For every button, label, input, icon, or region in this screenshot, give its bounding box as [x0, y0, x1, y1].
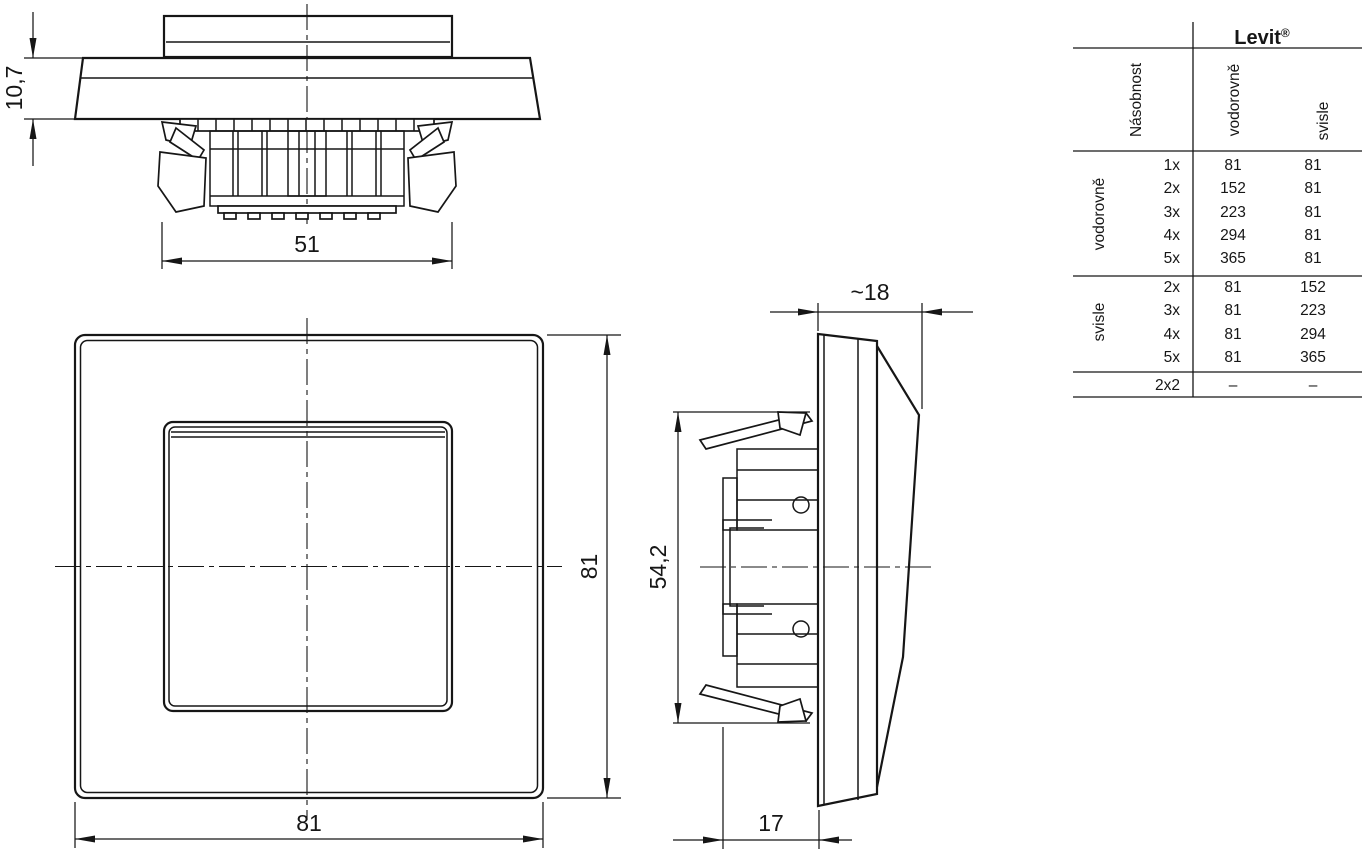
table-header-multiplicity: Násobnost	[1128, 62, 1145, 137]
dim-label-side-depth-front: ~18	[850, 279, 889, 305]
dim-label-front-height: 81	[576, 554, 602, 580]
table-cell: 294	[1300, 326, 1326, 343]
table-cell: 2x2	[1155, 377, 1180, 394]
top-view: 10,7 51	[1, 4, 540, 269]
rocker-profile	[164, 16, 452, 57]
table-cell: 81	[1304, 227, 1321, 244]
table-brand: Levit®	[1234, 26, 1290, 49]
dim-label-side-height: 54,2	[645, 545, 671, 590]
table-cell: 4x	[1164, 326, 1181, 343]
side-view: ~18 54,2 17	[645, 279, 973, 849]
table-cell: 81	[1224, 157, 1241, 174]
table-cell: 2x	[1164, 180, 1181, 197]
table-cell: 152	[1300, 279, 1326, 296]
table-group-label-vertical: svisle	[1091, 303, 1108, 342]
table-header-vertical: svisle	[1315, 102, 1332, 141]
table-cell: 81	[1224, 349, 1241, 366]
table-cell: 223	[1300, 302, 1326, 319]
dimension-side-depth-back: 17	[673, 727, 852, 849]
table-cell: 1x	[1164, 157, 1181, 174]
table-header-horizontal: vodorovně	[1226, 64, 1243, 136]
dimension-side-depth-front: ~18	[770, 279, 973, 409]
frame-side	[818, 334, 877, 806]
table-cell: 4x	[1164, 227, 1181, 244]
dim-label-front-width: 81	[296, 810, 322, 836]
table-cell: 81	[1304, 250, 1321, 267]
table-cell: 81	[1224, 279, 1241, 296]
table-cell: 223	[1220, 204, 1246, 221]
table-cell: 81	[1224, 326, 1241, 343]
table-cell: 5x	[1164, 349, 1181, 366]
dimension-front-width: 81	[75, 802, 543, 848]
table-cell: 2x	[1164, 279, 1181, 296]
brand-name: Levit	[1234, 27, 1281, 49]
dim-label-top-height: 10,7	[1, 66, 27, 111]
dim-label-top-width: 51	[294, 231, 320, 257]
table-cell: 152	[1220, 180, 1246, 197]
table-group-label-horizontal: vodorovně	[1091, 178, 1108, 250]
table-cell: 365	[1300, 349, 1326, 366]
table-cell: –	[1229, 377, 1238, 394]
table-cell: –	[1309, 377, 1318, 394]
front-view: 81 81	[55, 318, 621, 848]
table-cell: 3x	[1164, 302, 1181, 319]
table-cell: 5x	[1164, 250, 1181, 267]
table-cell: 294	[1220, 227, 1246, 244]
dim-label-side-depth-back: 17	[758, 810, 784, 836]
dimension-table: Levit® Násobnost vodorovně svisle vodoro…	[1073, 22, 1362, 397]
dimension-top-width: 51	[162, 222, 452, 269]
table-cell: 81	[1304, 180, 1321, 197]
table-cell: 3x	[1164, 204, 1181, 221]
table-cell: 81	[1304, 204, 1321, 221]
table-cell: 365	[1220, 250, 1246, 267]
table-cell: 81	[1224, 302, 1241, 319]
technical-drawing-sheet: 10,7 51 81	[0, 0, 1363, 858]
table-cell: 81	[1304, 157, 1321, 174]
drawing-svg: 10,7 51 81	[0, 0, 1363, 858]
registered-trademark-symbol: ®	[1281, 26, 1290, 40]
dimension-top-height: 10,7	[1, 12, 86, 166]
